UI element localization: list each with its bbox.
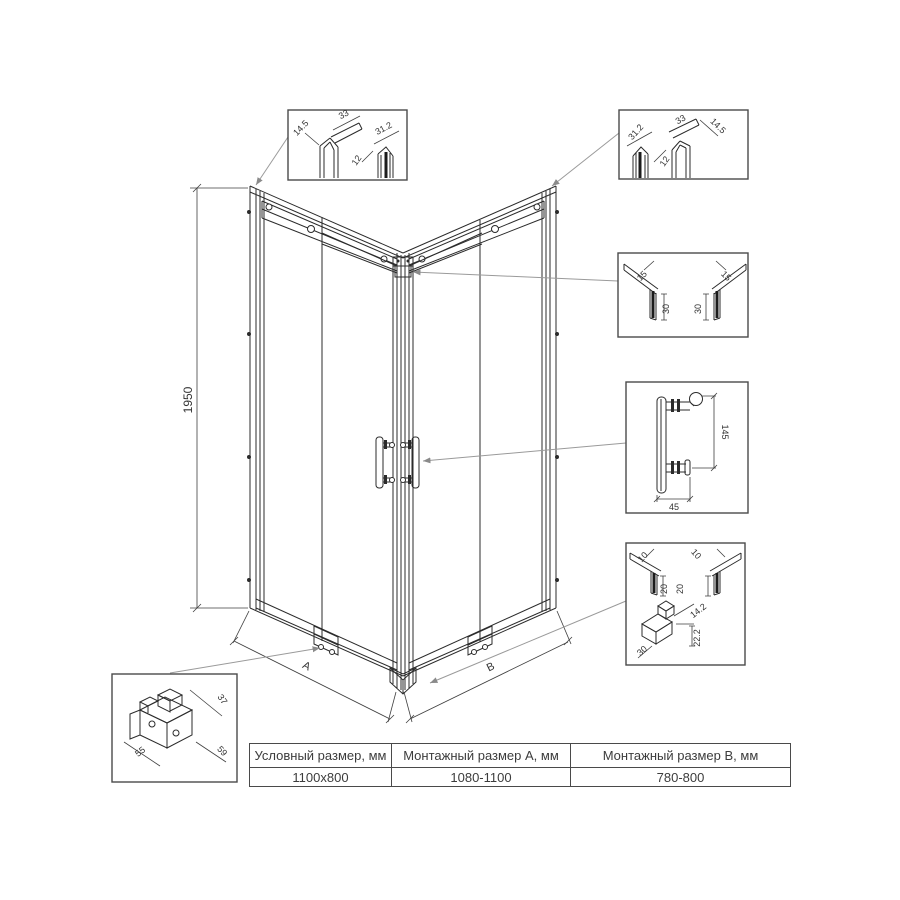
dim-label: 30 (661, 304, 671, 314)
callout-roller-bracket: 37 55 59 (112, 674, 237, 782)
main-drawing (247, 186, 559, 694)
dim-label: 12 (350, 153, 364, 167)
left-wall-panel (247, 186, 403, 676)
leader-top-left (256, 137, 288, 185)
width-dimension-a: A (230, 611, 396, 723)
leader-wall-profile (413, 272, 618, 281)
dim-label: 10 (689, 547, 703, 561)
bottom-rails (256, 599, 550, 670)
leader-roller (170, 648, 320, 673)
size-table: Условный размер, мм Монтажный размер A, … (249, 743, 791, 787)
size-table-value-row: 1100x800 1080-1100 780-800 (250, 768, 791, 787)
dim-label: 10 (636, 550, 650, 564)
callout-top-left-profile: 14.5 33 12 31.2 (288, 108, 407, 180)
callout-wall-profiles: 15 15 30 30 (618, 253, 748, 337)
leader-handle (423, 443, 626, 461)
dim-label: 22.2 (692, 629, 702, 647)
dim-label: 30 (693, 304, 703, 314)
leader-lines (170, 133, 626, 683)
right-wall-panel (403, 186, 559, 676)
leader-top-right (552, 133, 619, 186)
dim-label: 30 (635, 644, 649, 658)
dim-label: 37 (215, 692, 229, 706)
dim-label: 14.5 (708, 116, 728, 135)
header-mounting-size-b: Монтажный размер B, мм (571, 744, 791, 768)
top-rails (262, 201, 544, 273)
left-door-handle (376, 437, 395, 488)
header-mounting-size-a: Монтажный размер A, мм (392, 744, 571, 768)
corner-connector-sketch: 14.2 22.2 30 (635, 601, 708, 658)
dimension-a-label: A (300, 659, 313, 673)
dim-label: 31.2 (626, 122, 645, 142)
dimension-b-label: B (485, 660, 497, 674)
height-dimension-label: 1950 (181, 386, 195, 413)
technical-drawing-page: 1950 A B (0, 0, 900, 900)
value-nominal-size: 1100x800 (250, 768, 392, 787)
right-door-handle (401, 437, 420, 488)
dim-label: 31.2 (374, 120, 394, 137)
callout-top-right-profile: 31.2 12 33 14.5 (619, 110, 748, 179)
value-mounting-size-a: 1080-1100 (392, 768, 571, 787)
dim-label: 45 (669, 502, 679, 512)
callout-bottom-corner: 10 10 20 20 14.2 22.2 30 (626, 543, 745, 665)
header-nominal-size: Условный размер, мм (250, 744, 392, 768)
height-dimension: 1950 (181, 184, 248, 612)
dim-label: 145 (720, 424, 730, 439)
size-table-header-row: Условный размер, мм Монтажный размер A, … (250, 744, 791, 768)
leader-bottom-corner (430, 601, 626, 683)
callout-handle: 145 45 (626, 382, 748, 513)
dim-label: 20 (675, 584, 685, 594)
dim-label: 20 (659, 584, 669, 594)
dim-label: 14.2 (688, 601, 708, 620)
value-mounting-size-b: 780-800 (571, 768, 791, 787)
dim-label: 55 (133, 745, 147, 759)
